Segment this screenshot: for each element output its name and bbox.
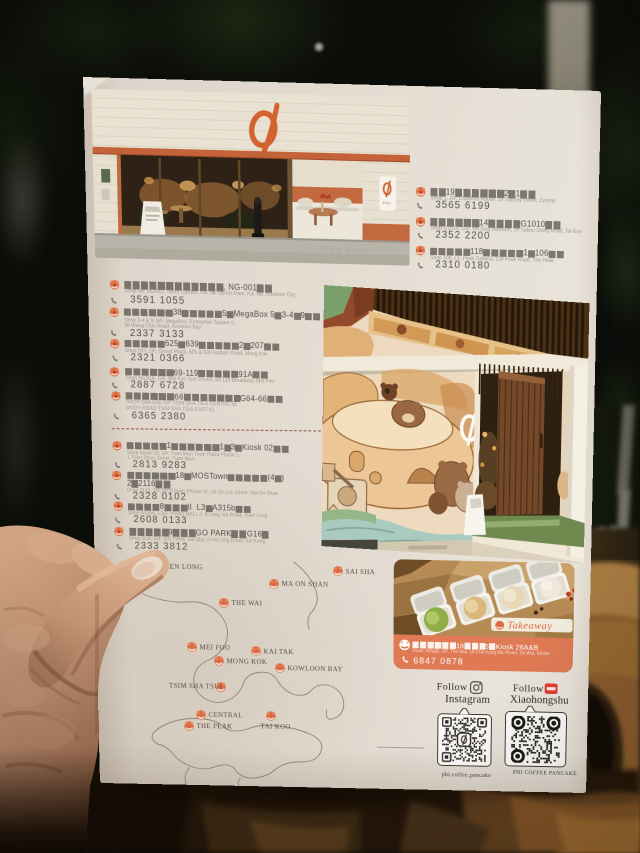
svg-text:Starry Vision: Starry Vision: [321, 246, 367, 254]
svg-text:PHI: PHI: [383, 201, 392, 205]
